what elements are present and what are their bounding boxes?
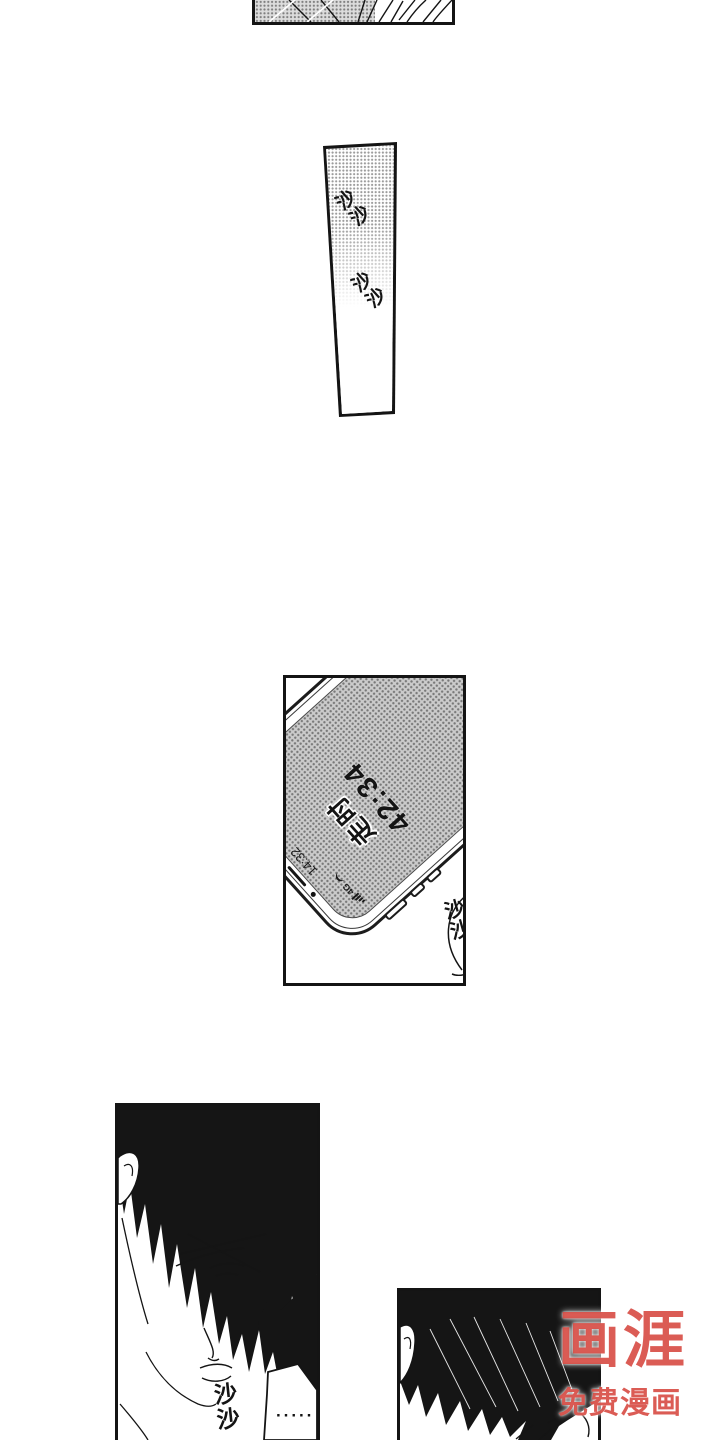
hair-art [400, 1291, 598, 1440]
power-button [425, 867, 442, 884]
hair-mass [400, 1291, 598, 1440]
manga-page: 沙沙 沙沙 14:32 4G 走时 42:34 [0, 0, 720, 1440]
volume-button [384, 898, 409, 921]
camera-icon [310, 891, 317, 898]
sfx-rustle-face: 沙沙 [205, 1380, 244, 1433]
panel-face-closeup: 沙沙 ····· [115, 1103, 320, 1440]
signal-bars-icon [351, 893, 365, 907]
nose-lips-lines [200, 1328, 232, 1381]
panel-hair-closeup [397, 1288, 601, 1440]
panel-top-sliver [252, 0, 455, 25]
wifi-icon [333, 871, 346, 884]
panel-rustle-sfx: 沙沙 沙沙 [320, 140, 400, 418]
volume-button [409, 882, 426, 899]
speech-ellipsis: ····· [276, 1406, 314, 1426]
hair-strokes-art [255, 0, 454, 22]
panel-phone: 14:32 4G 走时 42:34 沙沙 [283, 675, 466, 986]
status-icons: 4G [332, 871, 365, 907]
network-label: 4G [341, 881, 356, 896]
